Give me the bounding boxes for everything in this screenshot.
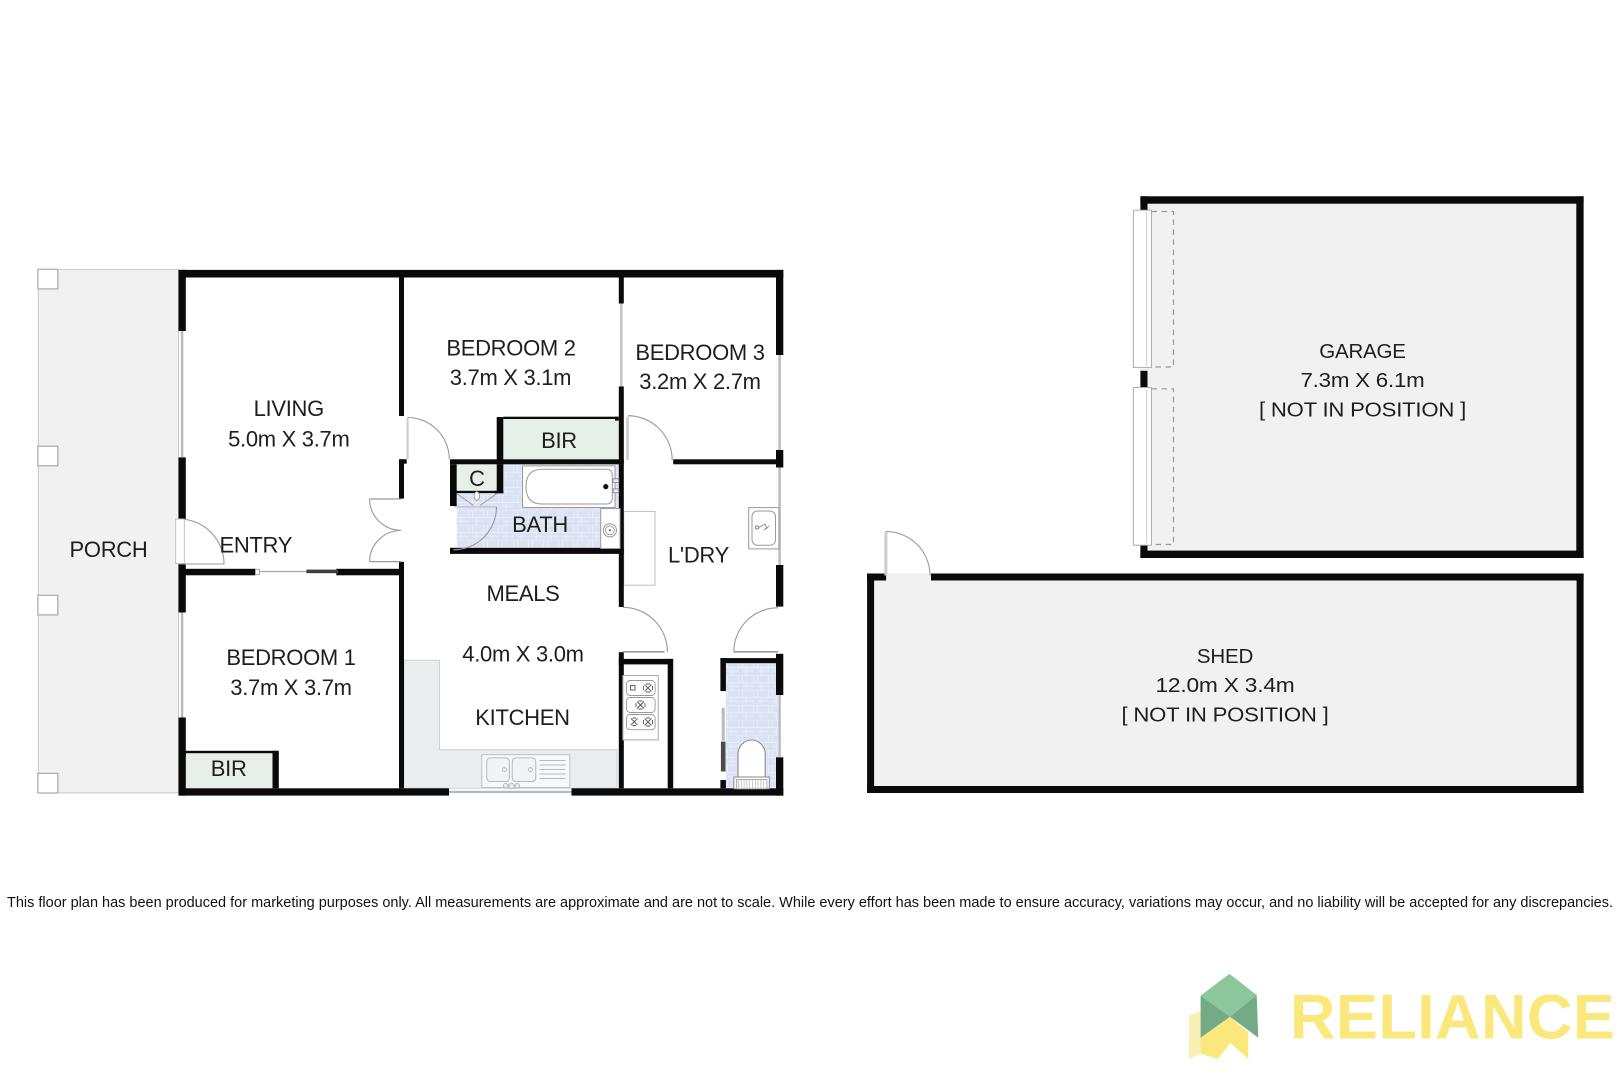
- svg-text:L'DRY: L'DRY: [668, 543, 730, 568]
- svg-text:BEDROOM 2: BEDROOM 2: [446, 336, 575, 361]
- svg-text:RELIANCE: RELIANCE: [1290, 983, 1615, 1053]
- svg-text:C: C: [469, 466, 485, 491]
- svg-text:5.0m X 3.7m: 5.0m X 3.7m: [228, 427, 349, 452]
- svg-text:BATH: BATH: [512, 512, 568, 537]
- svg-text:[ NOT IN POSITION ]: [ NOT IN POSITION ]: [1259, 398, 1466, 421]
- svg-text:PORCH: PORCH: [70, 537, 148, 562]
- svg-text:GARAGE: GARAGE: [1319, 340, 1406, 363]
- svg-text:LIVING: LIVING: [254, 396, 324, 421]
- svg-text:12.0m X 3.4m: 12.0m X 3.4m: [1156, 674, 1295, 697]
- svg-text:KITCHEN: KITCHEN: [475, 705, 569, 730]
- svg-text:ENTRY: ENTRY: [219, 533, 292, 558]
- svg-text:3.7m X 3.7m: 3.7m X 3.7m: [230, 675, 351, 700]
- svg-text:MEALS: MEALS: [486, 581, 559, 606]
- svg-text:[ NOT IN POSITION ]: [ NOT IN POSITION ]: [1122, 703, 1329, 726]
- svg-text:SHED: SHED: [1197, 645, 1253, 668]
- svg-text:BEDROOM 3: BEDROOM 3: [635, 340, 764, 365]
- svg-text:BEDROOM 1: BEDROOM 1: [226, 645, 355, 670]
- svg-text:3.7m X 3.1m: 3.7m X 3.1m: [450, 365, 571, 390]
- svg-text:4.0m X 3.0m: 4.0m X 3.0m: [462, 642, 583, 667]
- svg-text:BIR: BIR: [211, 756, 247, 781]
- svg-text:This floor plan has been produ: This floor plan has been produced for ma…: [7, 894, 1613, 911]
- svg-text:3.2m X 2.7m: 3.2m X 2.7m: [639, 369, 760, 394]
- svg-text:BIR: BIR: [541, 428, 577, 453]
- svg-text:7.3m X 6.1m: 7.3m X 6.1m: [1301, 369, 1425, 392]
